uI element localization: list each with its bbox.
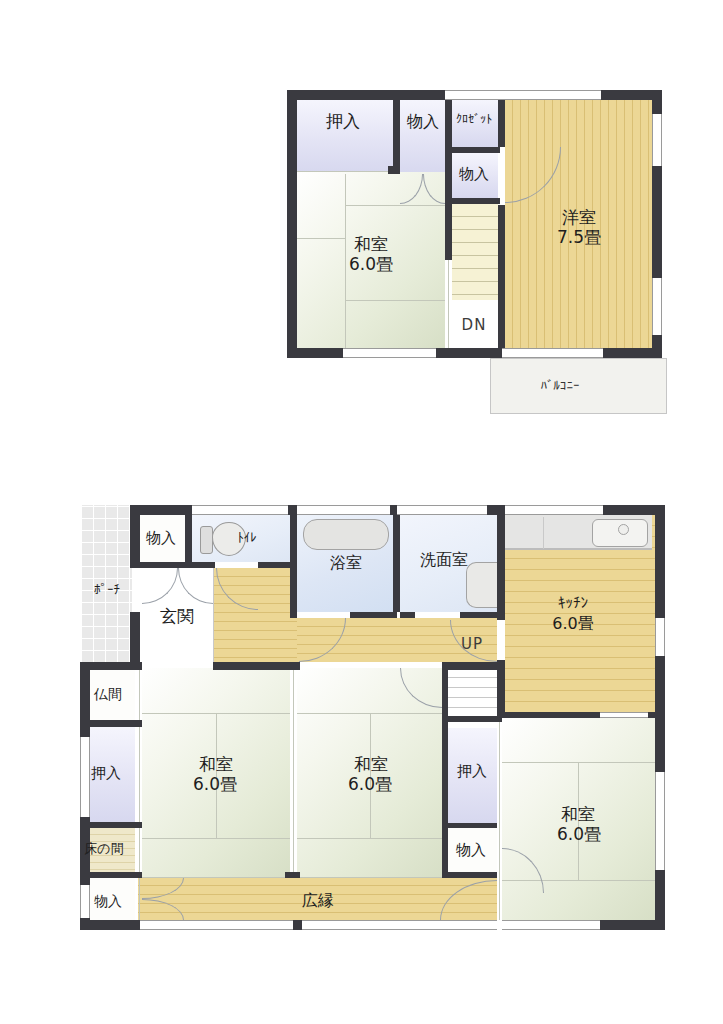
wall-segment [648, 712, 655, 718]
wall-segment [390, 505, 397, 515]
room-size-label: 6.0畳 [349, 255, 393, 275]
room-size-label: 7.5畳 [557, 228, 601, 248]
window [397, 505, 487, 515]
wall-segment [185, 505, 192, 568]
stairs-2f [452, 204, 498, 300]
tatami-line [345, 300, 445, 301]
room-label: 物入 [407, 113, 439, 131]
stairs-up-label: UP [461, 636, 483, 653]
wall-segment [287, 90, 445, 100]
room-label: 玄関 [160, 607, 194, 627]
wall-segment [192, 562, 215, 568]
wall-segment [655, 505, 665, 618]
wall-segment [497, 505, 505, 620]
wall-segment [350, 612, 397, 618]
wall-segment [287, 90, 297, 358]
window [297, 505, 390, 515]
window [505, 505, 603, 515]
partition-line [293, 668, 294, 877]
wall-segment [445, 100, 452, 260]
room-label: 物入 [146, 530, 176, 547]
hiroen-label: 広縁 [302, 892, 334, 910]
room-label: 物入 [94, 893, 122, 909]
bathtub-icon [303, 519, 389, 550]
floor-plan: 押入 物入 ｸﾛｾﾞｯﾄ 物入 和室 6.0畳 洋室 7.5畳 DN ﾊﾞﾙｺﾆ… [0, 0, 723, 1024]
room-label: ｸﾛｾﾞｯﾄ [456, 113, 492, 127]
room-label: 押入 [457, 763, 487, 780]
toilet-icon [200, 526, 213, 554]
wall-segment [600, 920, 665, 930]
tatami-line [345, 174, 346, 348]
wall-segment [442, 823, 497, 828]
room-size-label: 6.0畳 [193, 775, 237, 795]
room-label: 和室 [354, 755, 388, 775]
partition-line [448, 260, 449, 348]
wall-segment [400, 612, 415, 618]
wall-segment [293, 920, 302, 930]
porch-label: ﾎﾟｰﾁ [94, 583, 120, 598]
room-size-label: 6.0畳 [348, 775, 392, 795]
wall-segment [442, 716, 502, 722]
wall-segment [130, 505, 140, 562]
wall-segment [460, 612, 502, 618]
stairs-1f [448, 668, 497, 716]
wall-segment [498, 100, 505, 147]
wall-segment [80, 720, 142, 727]
washbasin-icon [466, 562, 497, 608]
wall-segment [442, 872, 497, 878]
room-label: ﾄｲﾚ [237, 531, 257, 546]
room-size-label: 6.0畳 [557, 825, 601, 845]
window [192, 505, 288, 515]
wall-segment [436, 348, 502, 358]
window [445, 90, 601, 100]
sliding-door [502, 348, 603, 358]
wall-segment [655, 656, 665, 772]
window [343, 348, 436, 358]
room-label: 和室 [354, 235, 388, 255]
wall-segment [452, 147, 500, 153]
wall-segment [442, 722, 448, 828]
sliding-door [502, 920, 600, 930]
wall-segment [652, 90, 662, 114]
tatami-line [142, 838, 290, 839]
window [652, 278, 662, 335]
room-label: 押入 [326, 112, 360, 132]
wall-segment [452, 198, 500, 204]
balcony-label: ﾊﾞﾙｺﾆｰ [541, 379, 580, 394]
wall-segment [497, 662, 505, 716]
wall-segment [388, 166, 400, 174]
room-label: ｷｯﾁﾝ [558, 595, 588, 612]
window [80, 737, 90, 817]
wall-segment [287, 348, 343, 358]
wall-segment [652, 166, 662, 278]
room-label: 洗面室 [420, 551, 468, 569]
tatami-line [297, 838, 442, 839]
wall-segment [285, 662, 300, 670]
wall-segment [442, 662, 448, 722]
wall-segment [502, 712, 600, 718]
room-size-label: 6.0畳 [552, 615, 593, 633]
wall-segment [498, 205, 505, 348]
wall-segment [130, 612, 140, 668]
partition-line [213, 568, 214, 662]
wall-segment [393, 100, 400, 174]
wall-segment [393, 515, 400, 612]
wall-segment [290, 515, 297, 618]
wall-segment [80, 918, 90, 930]
wall-segment [603, 348, 662, 358]
room-label: 和室 [199, 755, 233, 775]
sliding-door [140, 920, 497, 930]
tatami-line [297, 171, 393, 172]
wall-segment [288, 505, 297, 515]
tatami-line [345, 205, 445, 206]
wall-segment [130, 562, 192, 568]
tatami-line [297, 238, 345, 239]
window [655, 772, 665, 870]
room-label: 和室 [561, 805, 595, 825]
window [80, 885, 90, 918]
window [652, 114, 662, 166]
room-label: 床の間 [84, 842, 123, 857]
room-label: 仏間 [94, 686, 122, 702]
window [600, 712, 648, 718]
wall-segment [80, 822, 142, 828]
room-label: 物入 [459, 166, 489, 183]
faucet-icon [618, 524, 629, 535]
wall-segment [285, 872, 300, 878]
room-label: 洋室 [562, 208, 596, 228]
wall-segment [80, 662, 142, 670]
room-label: 押入 [91, 765, 121, 782]
room-label: 浴室 [330, 554, 362, 572]
counter-divider [543, 517, 544, 549]
window [655, 618, 665, 656]
wall-segment [442, 662, 502, 670]
wall-segment [80, 872, 142, 878]
room-label: 物入 [456, 842, 486, 859]
partition-line [499, 716, 500, 920]
wall-segment [442, 828, 448, 877]
stairs-down-label: DN [462, 317, 487, 334]
partition-line [139, 668, 140, 920]
